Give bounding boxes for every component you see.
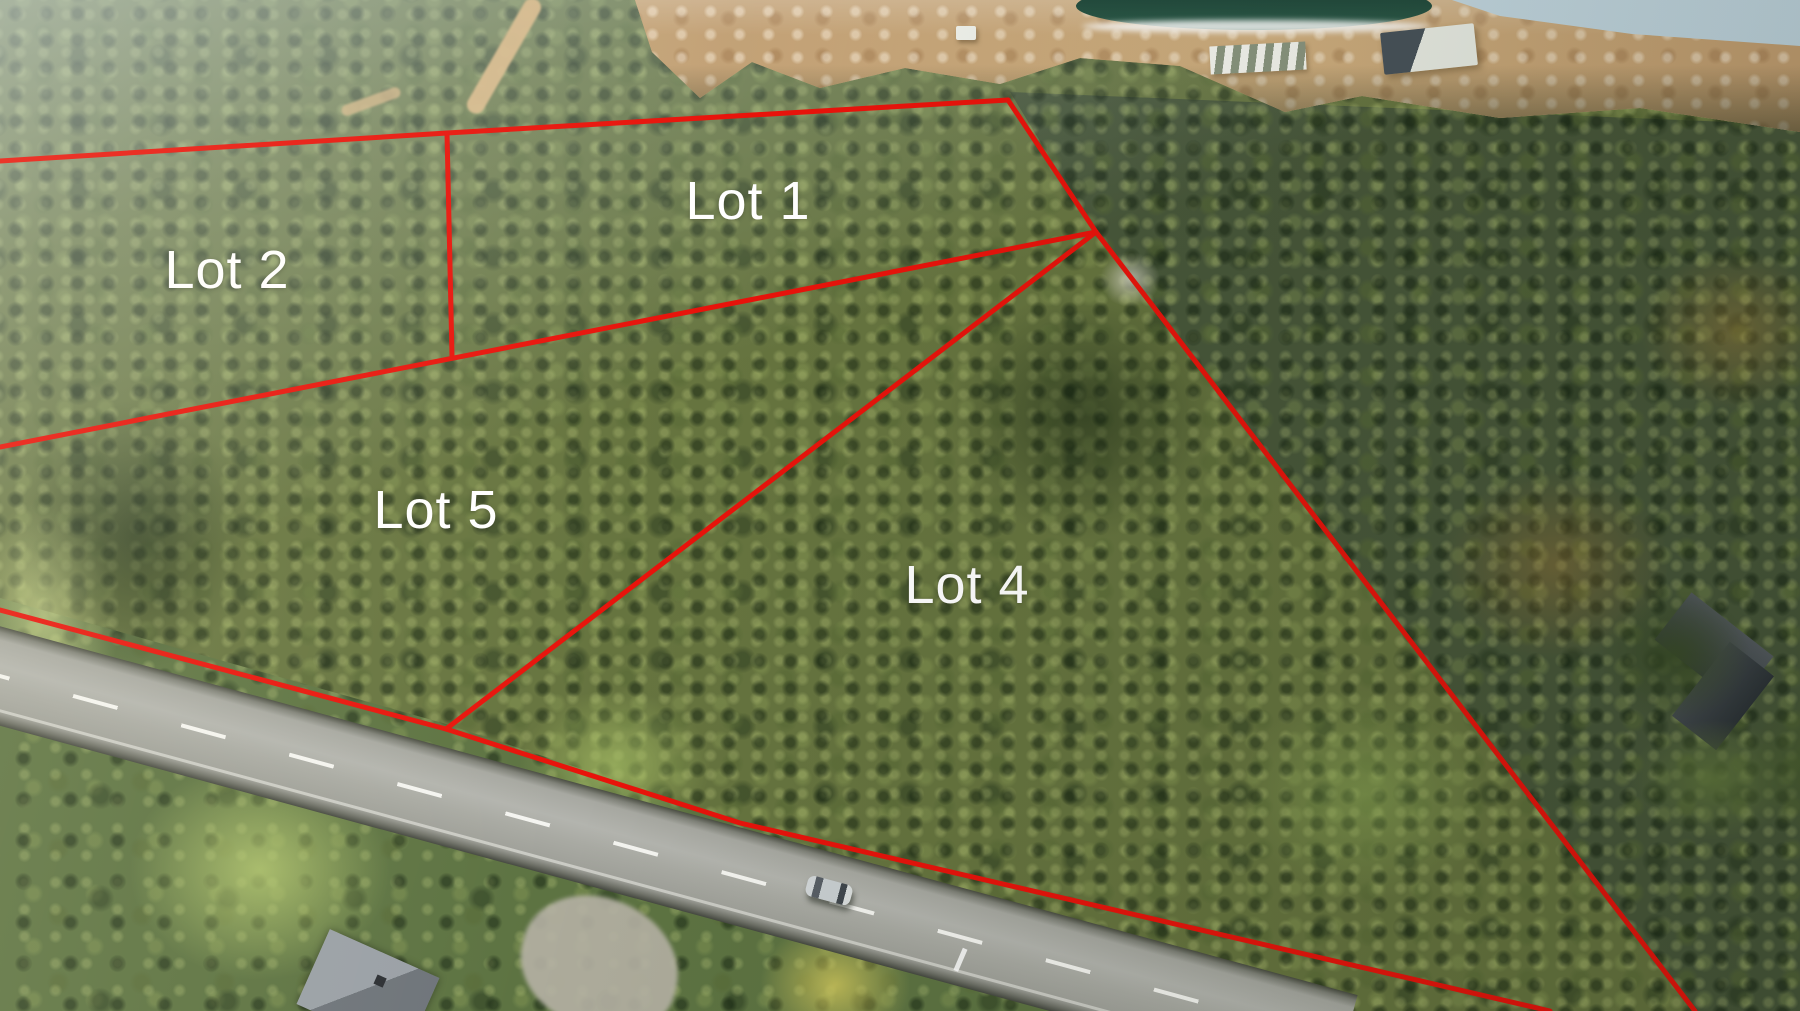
boundary-lot1-lot2-divider — [447, 133, 452, 356]
boundary-road-frontage — [446, 729, 1550, 1011]
lot-boundary-lines — [0, 0, 1800, 1011]
lot-5-label: Lot 5 — [373, 479, 498, 541]
boundary-lot2-north — [0, 133, 447, 161]
boundary-lot1-north — [447, 100, 1008, 133]
boundary-lot1-east — [1008, 100, 1096, 232]
boundary-lot5-southwest — [0, 610, 446, 729]
boundary-lot4-east — [1096, 232, 1695, 1011]
aerial-photo: Lot 1 Lot 2 Lot 5 Lot 4 — [0, 0, 1800, 1011]
lot-1-label: Lot 1 — [685, 170, 810, 232]
lot-2-label: Lot 2 — [164, 239, 289, 301]
boundary-lot5-lot4-line — [446, 232, 1096, 729]
lot-4-label: Lot 4 — [904, 554, 1029, 616]
